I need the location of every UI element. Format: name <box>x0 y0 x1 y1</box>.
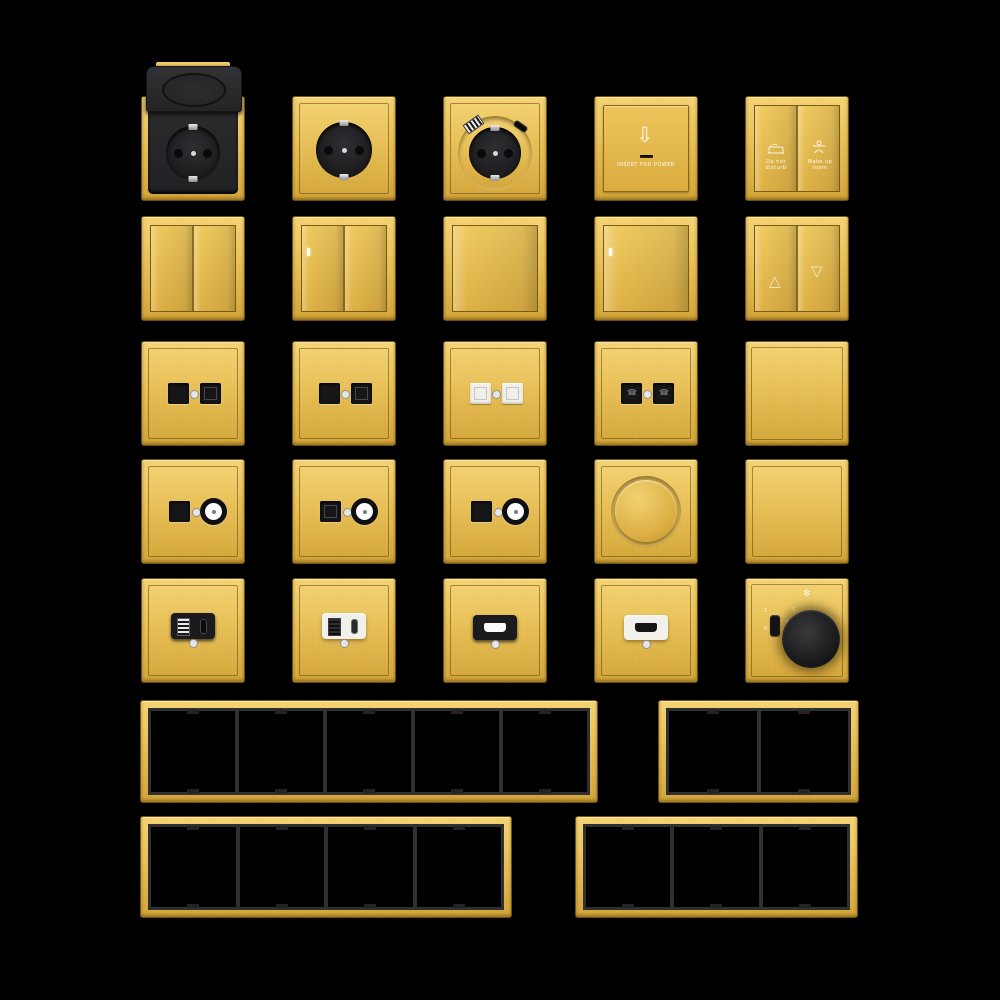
product-1-gang-rocker-switch-with-indicator <box>594 216 698 321</box>
card-slot <box>640 155 653 158</box>
product-hdmi-socket-black <box>443 578 547 683</box>
data-jack-right <box>200 383 221 404</box>
product-catalog-scene: ⇩ INSERT FOR POWER Do not disturb Make u… <box>0 0 1000 1000</box>
rocker-right <box>343 226 386 311</box>
frame-2-gang <box>658 700 859 803</box>
frame-lining <box>666 708 851 795</box>
do-not-disturb-icon <box>767 142 785 155</box>
fan-toggle-switch <box>770 615 780 636</box>
product-hdmi-socket-white <box>594 578 698 683</box>
product-dual-data-socket-black-2 <box>292 341 396 446</box>
phone-jack-left: ☎ <box>621 383 642 404</box>
usb-a-port-icon <box>328 618 341 636</box>
rocker-group <box>150 225 236 312</box>
schuko-outlet <box>316 122 372 178</box>
pin-hole-right <box>203 149 212 158</box>
curtain-down-rocker: ▽ <box>796 226 839 311</box>
product-rotary-dimmer <box>594 459 698 564</box>
rocker <box>453 226 537 311</box>
lid-oval-recess <box>162 73 226 107</box>
make-up-room-label: Make up room <box>802 159 838 172</box>
data-jack-left <box>470 383 491 404</box>
pin-hole-left <box>324 146 333 155</box>
product-schuko-socket-with-flip-cover <box>141 96 245 201</box>
schuko-outlet <box>166 126 220 180</box>
make-up-room-rocker: Make up room <box>796 106 839 191</box>
center-screw <box>190 390 199 399</box>
rocker-right <box>192 226 235 311</box>
rocker-group: Do not disturb Make up room <box>754 105 840 192</box>
phone-jack-right: ☎ <box>653 383 674 404</box>
down-arrow-icon: ⇩ <box>636 125 654 146</box>
center-screw <box>643 390 652 399</box>
product-usb-a-c-charger-white <box>292 578 396 683</box>
center-screw <box>492 390 501 399</box>
do-not-disturb-label: Do not disturb <box>758 159 794 172</box>
rocker-group <box>301 225 387 312</box>
frame-lining <box>583 824 850 910</box>
earth-clip-bottom <box>340 174 349 180</box>
rocker-group: △ ▽ <box>754 225 840 312</box>
earth-clip-top <box>491 125 500 131</box>
pin-hole-right <box>355 146 364 155</box>
fan-icon: ✻ <box>803 589 811 599</box>
product-key-card-power-switch: ⇩ INSERT FOR POWER <box>594 96 698 201</box>
data-jack-right <box>502 383 523 404</box>
coax-tv-connector <box>502 498 529 525</box>
usb-charger-module <box>322 613 366 639</box>
center-screw <box>341 390 350 399</box>
center-screw <box>191 151 196 156</box>
product-data-tv-socket-1 <box>141 459 245 564</box>
frame-lining <box>148 824 504 910</box>
indicator-led <box>307 248 310 256</box>
frame-opening <box>151 711 235 792</box>
card-holder-label: INSERT FOR POWER <box>606 162 686 168</box>
center-screw <box>340 639 349 648</box>
center-screw <box>342 148 347 153</box>
data-jack-right <box>351 383 372 404</box>
fan-toggle-off-label: 0 <box>764 626 768 632</box>
up-triangle-icon: △ <box>769 274 781 289</box>
make-up-room-icon <box>812 140 826 155</box>
hdmi-module <box>473 615 517 640</box>
frame-opening <box>415 711 499 792</box>
pin-hole-right <box>504 149 513 158</box>
hdmi-module <box>624 615 668 640</box>
product-schuko-socket-usb-charger <box>443 96 547 201</box>
fan-knob <box>782 610 840 668</box>
product-data-tv-socket-2 <box>292 459 396 564</box>
pin-hole-left <box>174 149 183 158</box>
frame-4-gang <box>140 816 512 918</box>
coax-tv-connector <box>351 498 378 525</box>
data-jack <box>169 501 190 522</box>
rocker <box>604 226 688 311</box>
card-holder-face <box>603 105 689 192</box>
usb-c-port-icon <box>200 619 207 634</box>
hdmi-port-icon <box>635 623 657 632</box>
product-2-gang-rocker-switch-with-indicator <box>292 216 396 321</box>
frame-opening <box>761 711 849 792</box>
frame-3-gang <box>575 816 858 918</box>
product-1-gang-rocker-switch <box>443 216 547 321</box>
usb-a-port-icon <box>177 618 190 636</box>
center-screw <box>642 640 651 649</box>
earth-clip-top <box>340 120 349 126</box>
flip-cover-lid <box>146 66 242 112</box>
indicator-led <box>609 248 612 256</box>
usb-charger-module <box>171 613 215 639</box>
data-jack-left <box>319 383 340 404</box>
frame-opening <box>586 827 670 907</box>
curtain-up-rocker: △ <box>755 226 796 311</box>
rocker-left <box>151 226 192 311</box>
fan-toggle-on-label: 1 <box>764 608 768 614</box>
rocker-left <box>302 226 343 311</box>
product-2-gang-rocker-switch <box>141 216 245 321</box>
center-screw <box>189 639 198 648</box>
data-jack <box>320 501 341 522</box>
product-curtain-blind-switch: △ ▽ <box>745 216 849 321</box>
frame-opening <box>763 827 847 907</box>
dimmer-recess <box>611 476 681 546</box>
frame-opening <box>151 827 236 907</box>
coax-tv-connector <box>200 498 227 525</box>
pin-hole-left <box>477 149 486 158</box>
frame-5-gang <box>140 700 598 803</box>
earth-clip-bottom <box>491 175 500 181</box>
center-screw <box>491 640 500 649</box>
schuko-outlet <box>469 127 521 179</box>
product-data-tv-socket-3 <box>443 459 547 564</box>
product-fan-speed-controller: ✻ 1 0 5 4 3 2 ❄ <box>745 578 849 683</box>
earth-clip-bottom <box>189 176 198 182</box>
down-triangle-icon: ▽ <box>811 264 823 279</box>
product-schuko-socket <box>292 96 396 201</box>
product-do-not-disturb-make-up-room-switch: Do not disturb Make up room <box>745 96 849 201</box>
usb-c-port-icon <box>351 619 358 634</box>
dimmer-knob <box>615 480 677 542</box>
center-screw <box>493 151 498 156</box>
product-dual-data-socket-black <box>141 341 245 446</box>
frame-opening <box>674 827 758 907</box>
frame-opening <box>240 827 325 907</box>
phone-icon: ☎ <box>627 388 637 397</box>
frame-lining <box>148 708 590 795</box>
plate-inner-line <box>751 347 843 440</box>
frame-opening <box>327 711 411 792</box>
hdmi-port-icon <box>484 623 506 632</box>
data-jack <box>471 501 492 522</box>
frame-opening <box>417 827 502 907</box>
rocker-group <box>603 225 689 312</box>
product-dual-data-socket-white <box>443 341 547 446</box>
plate-inner-line <box>752 466 842 557</box>
phone-icon: ☎ <box>659 388 669 397</box>
product-blank-plate <box>745 341 849 446</box>
earth-clip-top <box>189 124 198 130</box>
frame-opening <box>239 711 323 792</box>
do-not-disturb-rocker: Do not disturb <box>755 106 796 191</box>
product-blank-plate-2 <box>745 459 849 564</box>
frame-opening <box>503 711 587 792</box>
data-jack-left <box>168 383 189 404</box>
frame-opening <box>328 827 413 907</box>
product-usb-a-c-charger-black <box>141 578 245 683</box>
product-dual-phone-socket-black: ☎ ☎ <box>594 341 698 446</box>
rocker-group <box>452 225 538 312</box>
frame-opening <box>669 711 757 792</box>
